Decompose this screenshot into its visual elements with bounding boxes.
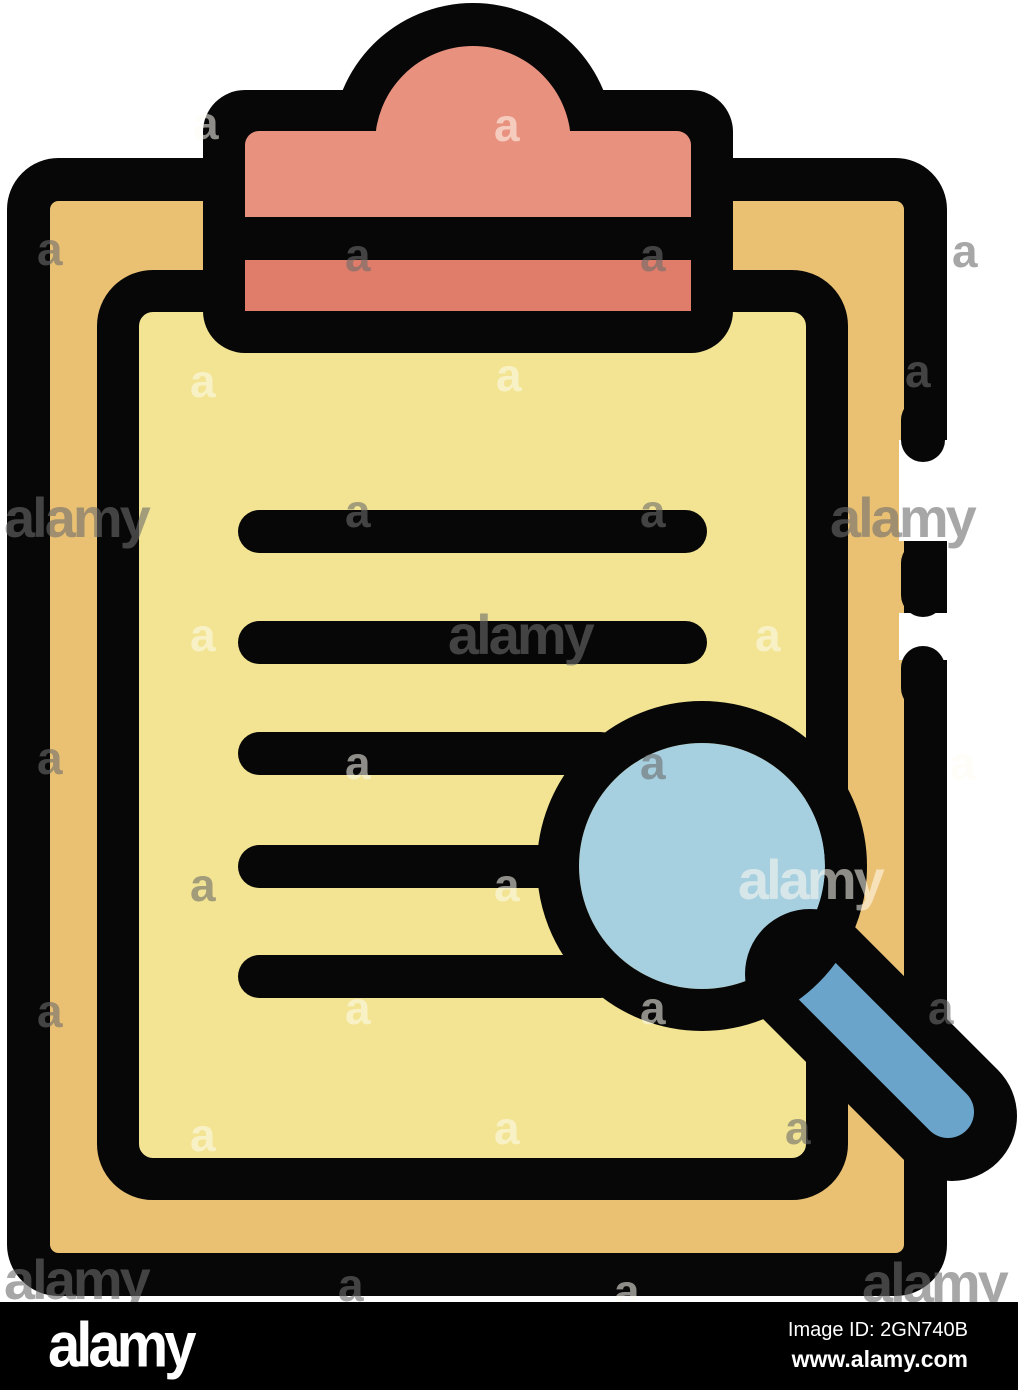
website-text: www.alamy.com (788, 1346, 968, 1373)
text-line-4 (238, 845, 562, 888)
right-border-cap-lower (901, 646, 945, 710)
clip-stripe (203, 217, 733, 260)
footer-bar: alamy Image ID: 2GN740B www.alamy.com (0, 1302, 1018, 1390)
text-line-3 (238, 732, 622, 775)
image-id-text: Image ID: 2GN740B (788, 1319, 968, 1342)
alamy-logo: alamy (48, 1318, 192, 1374)
text-line-5 (238, 955, 622, 998)
right-border-cap-upper (901, 398, 945, 462)
text-line-2 (238, 621, 707, 664)
stock-image-preview: aaaaaaaaaalamyaaalamyaalamyaaaaaaaalamya… (0, 0, 1018, 1390)
text-line-1 (238, 510, 707, 553)
right-border-dash (901, 541, 945, 617)
clipboard-search-icon (0, 0, 1018, 1390)
footer-info: Image ID: 2GN740B www.alamy.com (788, 1319, 968, 1373)
clip-lower-band (245, 258, 691, 311)
